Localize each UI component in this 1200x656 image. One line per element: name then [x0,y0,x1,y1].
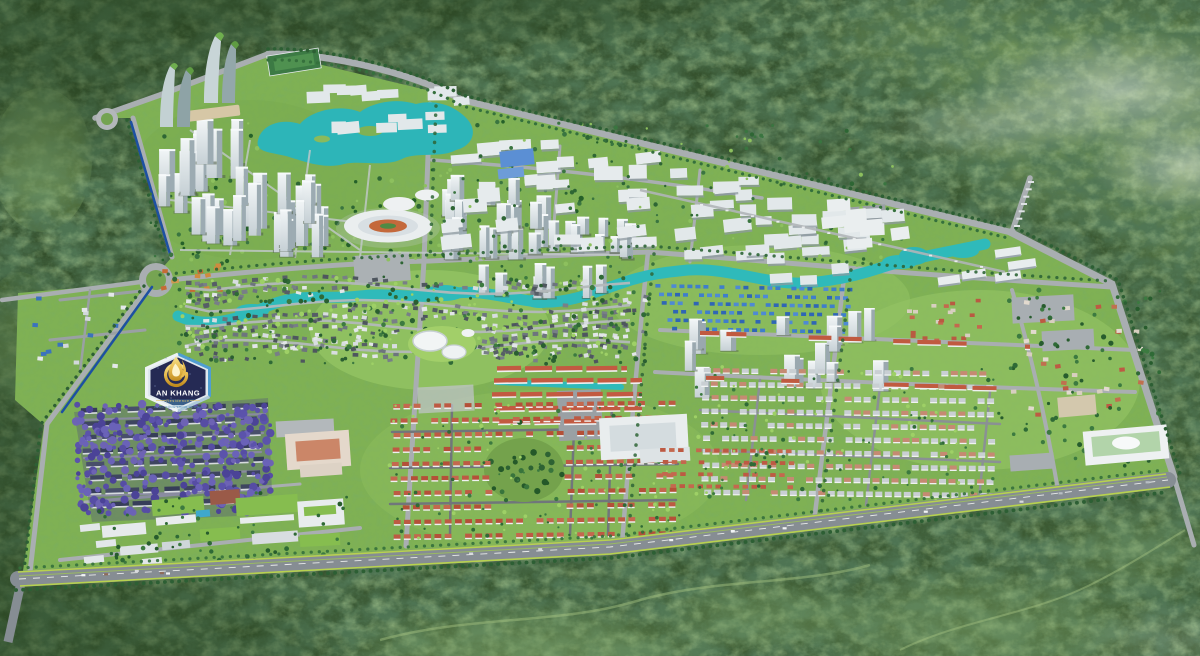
svg-text:Residence: Residence [166,399,189,403]
svg-text:CUỘC SỐNG THỊNH VƯỢNG: CUỘC SỐNG THỊNH VƯỢNG [154,404,203,409]
svg-text:AN KHANG: AN KHANG [156,389,200,398]
